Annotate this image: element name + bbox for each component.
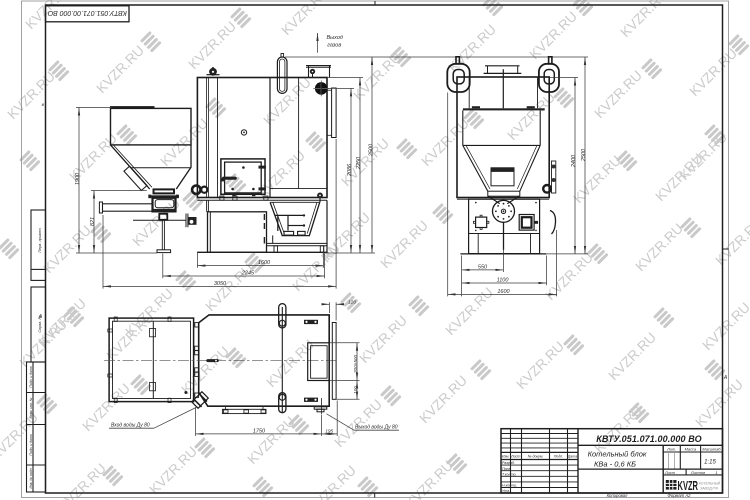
svg-text:Подп. и дата: Подп. и дата [29, 366, 33, 387]
svg-text:А: А [723, 375, 728, 381]
svg-text:Перв. примен.: Перв. примен. [38, 227, 42, 252]
svg-text:Лит.: Лит. [666, 447, 676, 452]
svg-text:3050: 3050 [214, 281, 227, 287]
svg-text:Котельный блок: Котельный блок [588, 450, 647, 459]
svg-text:200×500: 200×500 [353, 355, 358, 374]
svg-text:2400: 2400 [571, 154, 577, 168]
svg-text:Утв.: Утв. [502, 489, 510, 493]
svg-text:Разраб.: Разраб. [502, 461, 515, 465]
svg-text:100: 100 [353, 386, 358, 394]
svg-text:1100: 1100 [497, 277, 510, 283]
svg-text:Т.контр.: Т.контр. [502, 472, 517, 476]
svg-text:Взам. инв. №: Взам. инв. № [29, 397, 33, 418]
svg-text:№ докум.: № докум. [528, 455, 544, 459]
svg-text:Масштаб: Масштаб [702, 447, 721, 452]
svg-text:1: 1 [715, 470, 717, 475]
svg-text:Лист: Лист [664, 470, 676, 475]
svg-text:ЗАВОД Р.Ф.: ЗАВОД Р.Ф. [700, 486, 719, 490]
svg-text:КВТУ.051.071.00.000 ВО: КВТУ.051.071.00.000 ВО [596, 434, 701, 444]
svg-text:Пров.: Пров. [502, 467, 511, 471]
svg-text:газов: газов [327, 42, 341, 48]
svg-text:Вход воды Ду 80: Вход воды Ду 80 [111, 422, 150, 428]
svg-text:Инв. № подл.: Инв. № подл. [29, 467, 33, 488]
svg-text:Подп. и дата: Подп. и дата [29, 434, 33, 455]
svg-text:550: 550 [478, 264, 488, 270]
svg-text:2250: 2250 [356, 156, 362, 170]
svg-text:Листов: Листов [690, 470, 705, 475]
svg-text:KVZR: KVZR [678, 479, 699, 493]
svg-text:1600: 1600 [258, 260, 271, 266]
svg-text:Дата: Дата [567, 455, 577, 459]
svg-text:2245: 2245 [241, 270, 255, 276]
svg-text:Выход: Выход [326, 35, 343, 41]
svg-text:Изм.: Изм. [502, 455, 510, 459]
svg-text:195: 195 [325, 428, 333, 434]
svg-text:1:15: 1:15 [704, 460, 716, 466]
svg-text:2086: 2086 [347, 163, 353, 177]
svg-text:2500: 2500 [368, 143, 374, 157]
svg-text:1600: 1600 [497, 289, 510, 295]
svg-text:Н.контр.: Н.контр. [502, 484, 517, 488]
svg-text:Подп.: Подп. [554, 455, 564, 459]
svg-text:821: 821 [90, 217, 96, 226]
svg-text:Лист: Лист [510, 455, 520, 459]
svg-text:КВТУ.051.071.00.000 ВО: КВТУ.051.071.00.000 ВО [47, 9, 127, 16]
svg-text:Выход воды Ду 80: Выход воды Ду 80 [355, 425, 398, 431]
svg-text:Формат А2: Формат А2 [668, 493, 692, 498]
svg-text:КВа - 0,6 КБ: КВа - 0,6 КБ [594, 459, 636, 468]
svg-text:120: 120 [348, 300, 356, 306]
svg-text:Масса: Масса [685, 447, 697, 452]
svg-text:1900: 1900 [75, 172, 81, 185]
svg-text:Копировал: Копировал [607, 493, 628, 498]
svg-text:2500: 2500 [581, 148, 587, 162]
svg-text:КОТЕЛЬНЫЙ: КОТЕЛЬНЫЙ [699, 481, 721, 485]
svg-text:Справ. №: Справ. № [38, 315, 42, 332]
svg-text:1750: 1750 [253, 428, 266, 434]
